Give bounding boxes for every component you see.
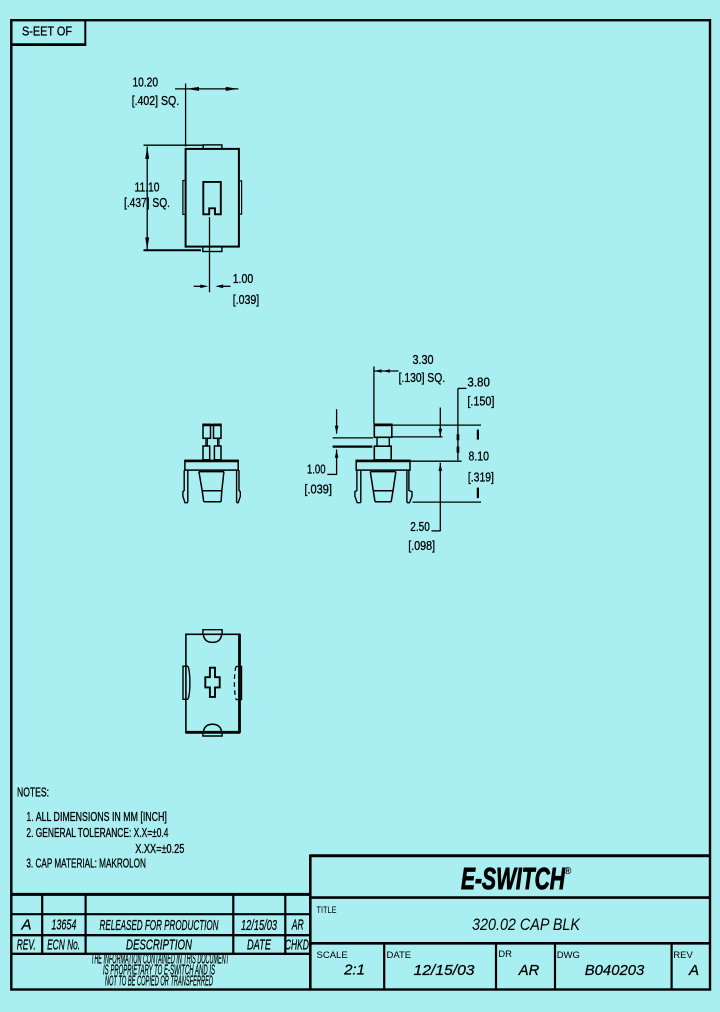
svg-text:[.130] SQ.: [.130] SQ. xyxy=(399,371,446,385)
svg-text:[.039]: [.039] xyxy=(233,293,260,307)
svg-text:2:1: 2:1 xyxy=(343,962,365,979)
svg-text:NOTES:: NOTES: xyxy=(17,786,49,800)
svg-text:NOT TO BE COPIED OR TRANSFERRE: NOT TO BE COPIED OR TRANSFERRED xyxy=(105,973,213,990)
svg-text:A: A xyxy=(688,962,699,979)
svg-text:RELEASED FOR PRODUCTION: RELEASED FOR PRODUCTION xyxy=(100,917,219,934)
svg-text:REV: REV xyxy=(673,950,693,961)
svg-text:A: A xyxy=(20,917,31,934)
svg-text:3.80: 3.80 xyxy=(467,375,490,389)
svg-text:12/15/03: 12/15/03 xyxy=(241,917,277,934)
svg-text:[.150]: [.150] xyxy=(467,395,494,409)
svg-text:CHKD: CHKD xyxy=(285,937,309,954)
svg-text:AR: AR xyxy=(518,962,540,979)
svg-text:3. CAP MATERIAL: MAKROLON: 3. CAP MATERIAL: MAKROLON xyxy=(26,857,145,871)
svg-text:2.50: 2.50 xyxy=(410,520,430,534)
svg-text:ECN No.: ECN No. xyxy=(47,937,80,954)
svg-text:13654: 13654 xyxy=(51,917,76,934)
svg-text:B040203: B040203 xyxy=(585,962,645,979)
svg-text:DR: DR xyxy=(498,949,512,960)
svg-text:X.XX=±0.25: X.XX=±0.25 xyxy=(135,842,184,856)
svg-text:8.10: 8.10 xyxy=(469,450,490,464)
svg-text:S-EET OF: S-EET OF xyxy=(22,25,72,39)
svg-text:2. GENERAL TOLERANCE: X.X=±0.4: 2. GENERAL TOLERANCE: X.X=±0.4 xyxy=(26,826,168,840)
svg-text:3.30: 3.30 xyxy=(413,353,434,367)
svg-text:SCALE: SCALE xyxy=(317,950,348,961)
svg-text:1.00: 1.00 xyxy=(307,463,326,477)
svg-text:320.02 CAP BLK: 320.02 CAP BLK xyxy=(472,915,581,934)
svg-text:[.319]: [.319] xyxy=(468,471,494,485)
svg-text:AR: AR xyxy=(291,917,304,934)
svg-text:[.098]: [.098] xyxy=(408,539,435,553)
svg-text:11.10: 11.10 xyxy=(135,181,160,195)
svg-text:12/15/03: 12/15/03 xyxy=(414,962,476,979)
svg-text:DATE: DATE xyxy=(247,937,272,954)
svg-text:1. ALL DIMENSIONS IN MM [INCH]: 1. ALL DIMENSIONS IN MM [INCH] xyxy=(26,810,167,824)
svg-text:DATE: DATE xyxy=(387,950,412,961)
svg-text:10.20: 10.20 xyxy=(133,76,159,90)
svg-text:REV.: REV. xyxy=(17,937,36,954)
svg-text:[.437] SQ.: [.437] SQ. xyxy=(124,196,170,210)
svg-text:TITLE: TITLE xyxy=(317,905,337,916)
svg-text:[.402] SQ.: [.402] SQ. xyxy=(132,94,180,108)
svg-text:DWG: DWG xyxy=(557,950,580,961)
svg-text:1.00: 1.00 xyxy=(233,272,254,286)
svg-text:[.039]: [.039] xyxy=(304,483,332,497)
svg-text:E-SWITCH: E-SWITCH xyxy=(461,861,565,896)
svg-text:®: ® xyxy=(564,866,572,877)
